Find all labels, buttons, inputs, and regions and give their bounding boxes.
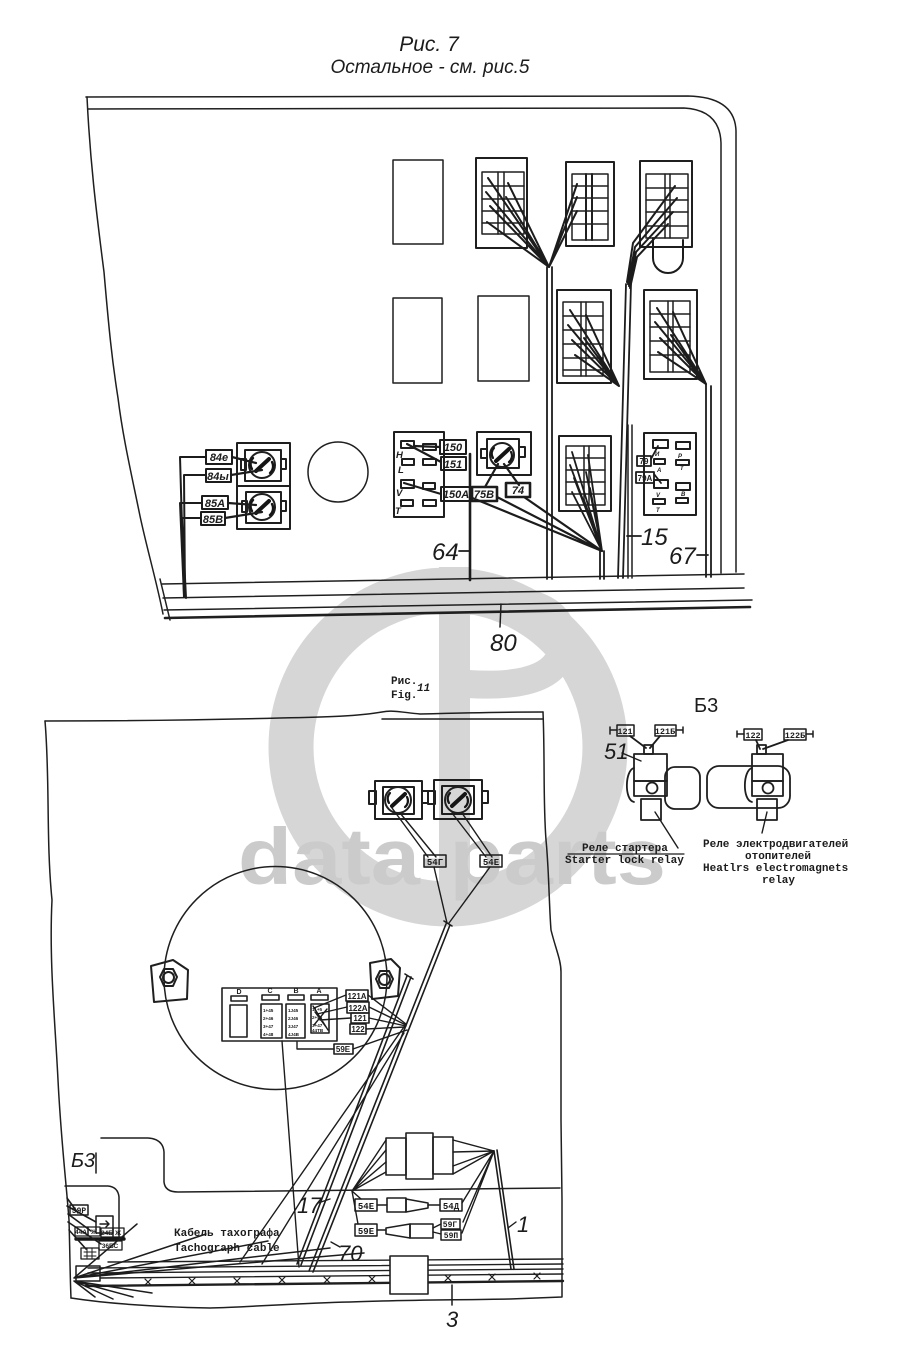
svg-text:150А: 150А	[443, 489, 469, 501]
svg-text:84е: 84е	[210, 452, 228, 464]
svg-text:Т: Т	[656, 508, 661, 514]
svg-text:Tachograph cable: Tachograph cable	[174, 1243, 280, 1255]
svg-text:Реле электродвигателей: Реле электродвигателей	[703, 839, 848, 851]
svg-text:85В: 85В	[203, 514, 223, 526]
svg-text:И: И	[655, 452, 660, 458]
svg-text:Рис.: Рис.	[391, 676, 417, 688]
svg-text:121: 121	[353, 1014, 367, 1023]
svg-text:В: В	[681, 492, 686, 498]
svg-text:4+48: 4+48	[263, 1032, 274, 1037]
svg-text:85А: 85А	[205, 498, 225, 510]
svg-text:121Б: 121Б	[655, 727, 675, 737]
svg-text:79: 79	[640, 457, 649, 466]
svg-text:122: 122	[745, 731, 760, 741]
svg-text:Heatlrs electromagnets: Heatlrs electromagnets	[703, 863, 848, 875]
svg-text:121А: 121А	[347, 992, 366, 1001]
svg-text:3+47: 3+47	[263, 1024, 274, 1029]
svg-text:Fig.: Fig.	[391, 690, 417, 702]
svg-text:L: L	[398, 465, 404, 476]
svg-text:59П: 59П	[444, 1232, 459, 1241]
svg-text:2+46: 2+46	[263, 1016, 274, 1021]
svg-text:1J45: 1J45	[288, 1008, 299, 1013]
svg-text:51: 51	[604, 739, 628, 764]
svg-text:Остальное - см. рис.5: Остальное - см. рис.5	[331, 57, 530, 78]
svg-text:54Д: 54Д	[443, 1202, 460, 1212]
svg-text:11: 11	[417, 683, 430, 695]
svg-text:70: 70	[338, 1241, 363, 1266]
svg-text:150: 150	[444, 442, 463, 454]
svg-text:59Е: 59Е	[336, 1045, 351, 1054]
svg-text:А: А	[656, 468, 661, 474]
svg-text:Ж: Ж	[90, 1229, 97, 1236]
svg-text:4J4В: 4J4В	[288, 1032, 300, 1037]
svg-text:Реле стартера: Реле стартера	[582, 843, 668, 855]
svg-text:relay: relay	[762, 875, 795, 887]
svg-text:3J47: 3J47	[288, 1024, 299, 1029]
svg-text:Рис. 7: Рис. 7	[399, 33, 460, 56]
svg-text:C: C	[267, 988, 272, 995]
svg-text:Н: Н	[396, 450, 404, 461]
svg-text:54Г: 54Г	[427, 858, 444, 868]
svg-text:54Е: 54Е	[358, 1202, 375, 1212]
svg-text:59Г: 59Г	[443, 1221, 458, 1230]
svg-text:3: 3	[446, 1307, 459, 1332]
svg-text:1: 1	[517, 1212, 529, 1237]
svg-text:24Б: 24Б	[101, 1230, 113, 1237]
svg-text:64: 64	[432, 539, 459, 566]
svg-text:Starter lock relay: Starter lock relay	[565, 855, 684, 867]
svg-text:Б3: Б3	[694, 695, 718, 717]
svg-text:54Е: 54Е	[483, 858, 500, 868]
svg-text:80: 80	[490, 630, 517, 657]
svg-text:Т: Т	[395, 506, 402, 517]
svg-text:44ТВ: 44ТВ	[312, 1028, 324, 1033]
svg-text:1+45: 1+45	[263, 1008, 274, 1013]
svg-text:отопителей: отопителей	[745, 851, 811, 863]
svg-text:B: B	[293, 988, 298, 995]
svg-text:17: 17	[297, 1193, 322, 1218]
svg-text:74: 74	[512, 485, 524, 497]
svg-text:84ы: 84ы	[207, 471, 229, 483]
svg-text:15: 15	[641, 524, 668, 551]
svg-text:Ж: Ж	[114, 1230, 121, 1237]
svg-text:V: V	[396, 488, 403, 499]
svg-text:151: 151	[444, 459, 462, 471]
svg-text:A: A	[316, 988, 321, 995]
svg-text:122: 122	[351, 1025, 365, 1034]
svg-text:67: 67	[669, 543, 697, 570]
svg-text:Кабель тахографа: Кабель тахографа	[174, 1227, 280, 1240]
svg-text:122А: 122А	[348, 1004, 367, 1013]
svg-text:Т: Т	[680, 466, 685, 472]
svg-text:59Е: 59Е	[358, 1227, 375, 1237]
svg-text:2J46: 2J46	[288, 1016, 299, 1021]
svg-text:79А: 79А	[638, 474, 653, 483]
svg-text:Б3: Б3	[71, 1150, 95, 1172]
svg-text:D: D	[236, 989, 241, 996]
